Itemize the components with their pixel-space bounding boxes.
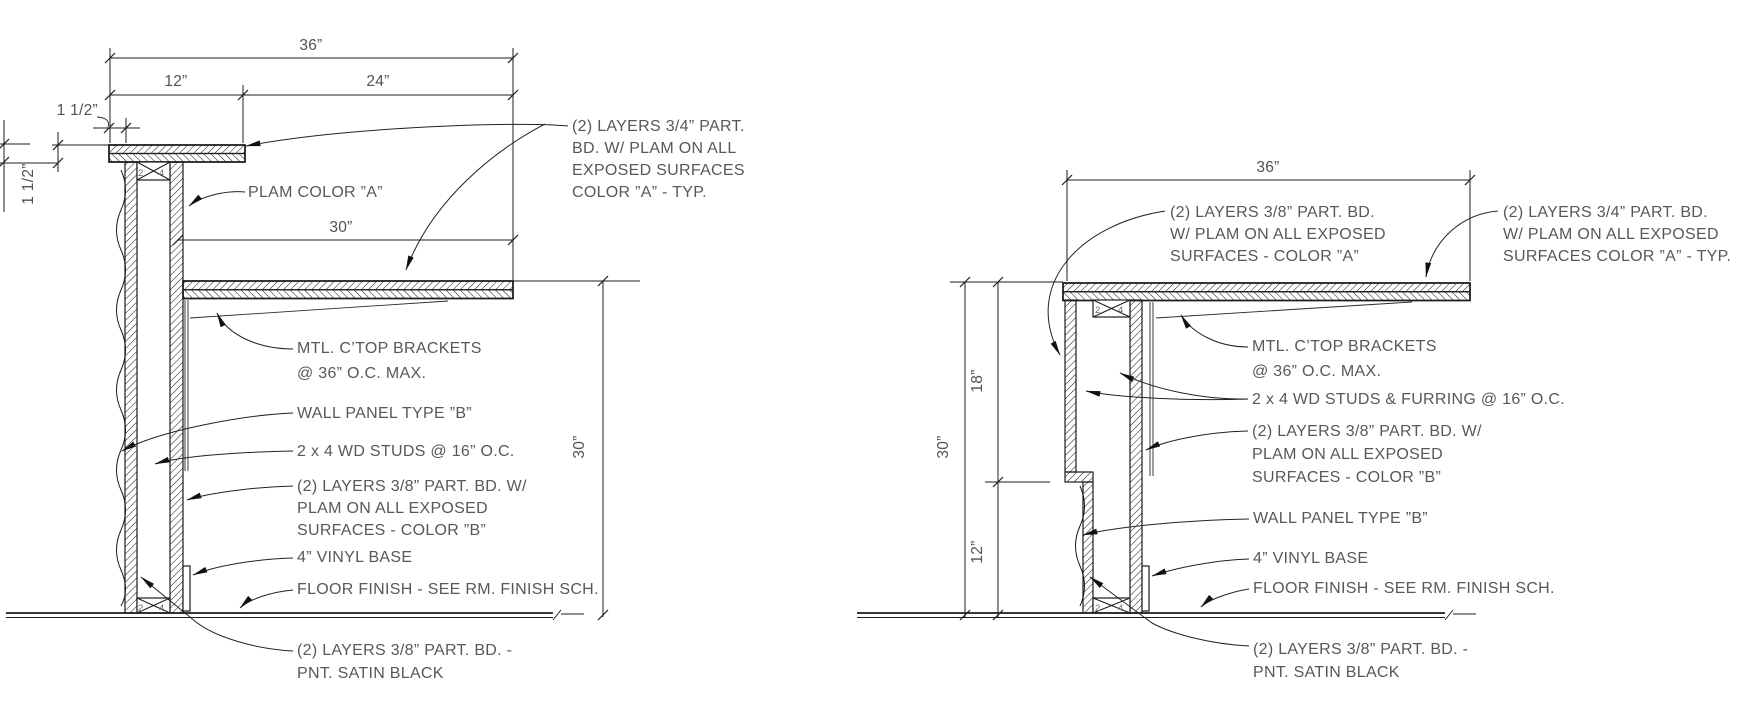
label-layers34: COLOR ”A” - TYP. bbox=[572, 184, 707, 201]
label-vinyl-base: 4” VINYL BASE bbox=[297, 549, 412, 566]
dim-36-label: 36” bbox=[299, 37, 322, 54]
label-satin-black: PNT. SATIN BLACK bbox=[297, 665, 444, 682]
left-floor-line bbox=[6, 610, 584, 620]
label-layers38-b: PLAM ON ALL EXPOSED bbox=[297, 500, 488, 517]
stud-mark-2: 2 bbox=[1095, 305, 1100, 316]
label-ctop-brackets: MTL. C’TOP BRACKETS bbox=[297, 340, 482, 357]
label-layers38-b: (2) LAYERS 3/8” PART. BD. W/ bbox=[1252, 423, 1482, 440]
label-layers34: EXPOSED SURFACES bbox=[572, 162, 745, 179]
label-studs-furring: 2 x 4 WD STUDS & FURRING @ 16” O.C. bbox=[1252, 391, 1565, 408]
dim-1half-h-label: 1 1/2” bbox=[57, 102, 98, 119]
left-countertop bbox=[183, 281, 513, 299]
left-outer-panel bbox=[125, 162, 137, 613]
left-counter-cap bbox=[109, 145, 245, 162]
dim-30-top-label: 30” bbox=[329, 219, 352, 236]
label-floor-finish: FLOOR FINISH - SEE RM. FINISH SCH. bbox=[1253, 580, 1555, 597]
label-layers34-typ: W/ PLAM ON ALL EXPOSED bbox=[1503, 226, 1719, 243]
left-vinyl-base bbox=[183, 566, 190, 611]
label-floor-finish: FLOOR FINISH - SEE RM. FINISH SCH. bbox=[297, 581, 599, 598]
right-furring-return bbox=[1065, 472, 1093, 482]
label-satin-black: PNT. SATIN BLACK bbox=[1253, 664, 1400, 681]
label-wall-panel-b: WALL PANEL TYPE ”B” bbox=[1253, 510, 1428, 527]
left-bottom-blocking: 2 4 bbox=[137, 598, 170, 614]
right-vinyl-base bbox=[1142, 566, 1149, 611]
label-ctop-brackets: @ 36” O.C. MAX. bbox=[297, 365, 426, 382]
right-labels: (2) LAYERS 3/8” PART. BD. W/ PLAM ON ALL… bbox=[1170, 204, 1731, 681]
dim-30-side-label: 30” bbox=[571, 435, 588, 458]
right-top-blocking: 2 4 bbox=[1093, 300, 1130, 317]
label-wall-panel-b: WALL PANEL TYPE ”B” bbox=[297, 405, 472, 422]
label-vinyl-base: 4” VINYL BASE bbox=[1253, 550, 1368, 567]
right-countertop bbox=[1063, 283, 1470, 301]
label-layers38-a: W/ PLAM ON ALL EXPOSED bbox=[1170, 226, 1386, 243]
label-layers38-b: PLAM ON ALL EXPOSED bbox=[1252, 446, 1443, 463]
dim-1half-v-label: 1 1/2” bbox=[20, 163, 37, 204]
left-labels: (2) LAYERS 3/4” PART. BD. W/ PLAM ON ALL… bbox=[248, 118, 745, 682]
dim-36-label: 36” bbox=[1256, 159, 1279, 176]
label-satin-black: (2) LAYERS 3/8” PART. BD. - bbox=[1253, 641, 1468, 658]
label-ctop-brackets: MTL. C’TOP BRACKETS bbox=[1252, 338, 1437, 355]
label-plam-color-a: PLAM COLOR ”A” bbox=[248, 184, 383, 201]
millwork-detail-sheet: 2 4 2 4 bbox=[0, 0, 1755, 703]
right-detail: 2 4 2 4 bbox=[857, 159, 1731, 681]
label-layers38-b: SURFACES - COLOR ”B” bbox=[297, 522, 486, 539]
label-layers38-a: (2) LAYERS 3/8” PART. BD. bbox=[1170, 204, 1375, 221]
dim-12-label: 12” bbox=[164, 73, 187, 90]
left-detail: 2 4 2 4 bbox=[0, 37, 745, 682]
left-top-blocking: 2 4 bbox=[137, 162, 170, 180]
label-layers38-b: (2) LAYERS 3/8” PART. BD. W/ bbox=[297, 478, 527, 495]
dim-18-label: 18” bbox=[969, 369, 986, 392]
label-layers34-typ: (2) LAYERS 3/4” PART. BD. bbox=[1503, 204, 1708, 221]
right-floor-line bbox=[857, 610, 1476, 620]
stud-mark-4: 4 bbox=[1118, 305, 1123, 316]
label-layers34-typ: SURFACES COLOR ”A” - TYP. bbox=[1503, 248, 1731, 265]
right-furring-panel bbox=[1065, 300, 1076, 472]
left-break-line bbox=[117, 170, 126, 606]
left-wall-assembly: 2 4 2 4 bbox=[6, 145, 584, 620]
label-satin-black: (2) LAYERS 3/8” PART. BD. - bbox=[297, 642, 512, 659]
right-inner-panel bbox=[1130, 300, 1142, 613]
left-inner-panel bbox=[170, 162, 183, 613]
dim-24-label: 24” bbox=[366, 73, 389, 90]
label-ctop-brackets: @ 36” O.C. MAX. bbox=[1252, 363, 1381, 380]
label-wd-studs: 2 x 4 WD STUDS @ 16” O.C. bbox=[297, 443, 515, 460]
label-layers34: BD. W/ PLAM ON ALL bbox=[572, 140, 737, 157]
dim-12-label: 12” bbox=[969, 540, 986, 563]
detail-drawing-canvas: 2 4 2 4 bbox=[0, 0, 1755, 703]
stud-mark-2: 2 bbox=[138, 168, 143, 179]
label-layers38-a: SURFACES - COLOR ”A” bbox=[1170, 248, 1359, 265]
label-layers34: (2) LAYERS 3/4” PART. bbox=[572, 118, 745, 135]
right-bottom-blocking: 2 4 bbox=[1093, 598, 1130, 614]
stud-mark-4: 4 bbox=[159, 168, 164, 179]
dim-30-label: 30” bbox=[935, 435, 952, 458]
label-layers38-b: SURFACES - COLOR ”B” bbox=[1252, 469, 1441, 486]
